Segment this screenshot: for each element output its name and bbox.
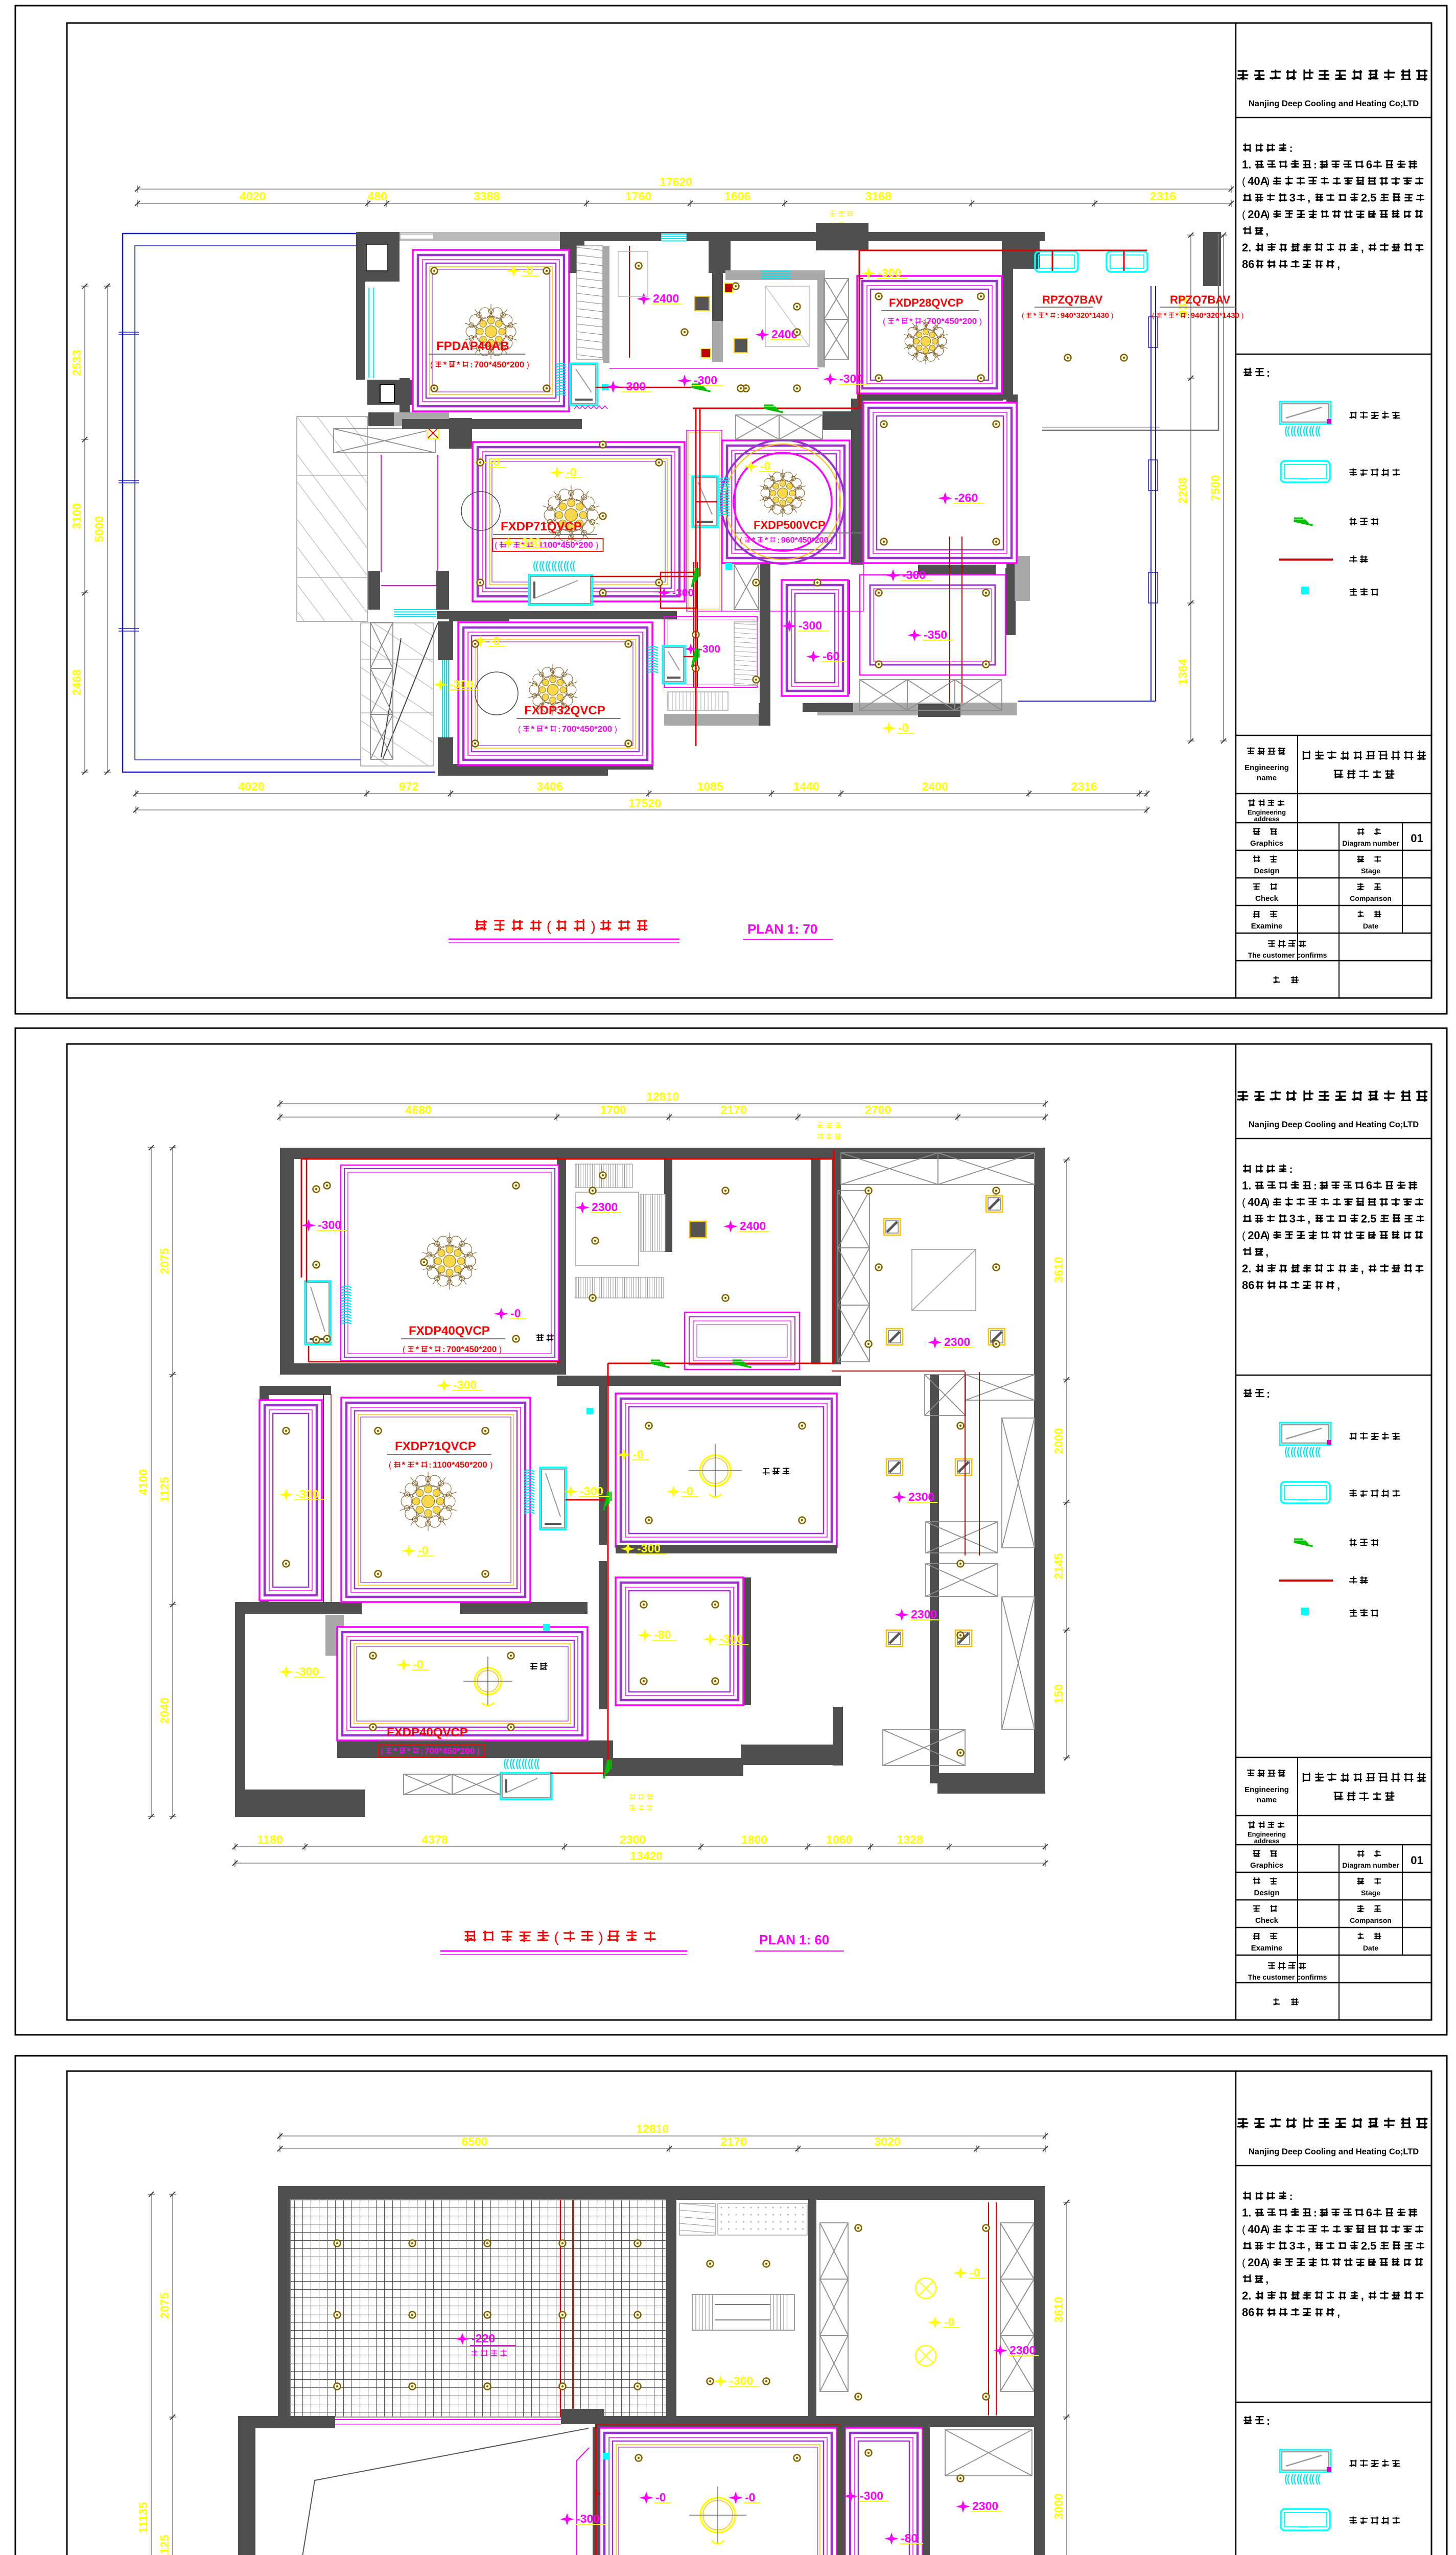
- svg-text:address: address: [1254, 1837, 1280, 1845]
- svg-text:Examine: Examine: [1251, 1944, 1283, 1953]
- svg-text:40A: 40A: [1248, 175, 1268, 188]
- svg-text:150: 150: [1052, 1684, 1065, 1704]
- svg-text:-300: -300: [730, 2374, 753, 2387]
- svg-text:,: ,: [1265, 1247, 1269, 1259]
- svg-text:-0: -0: [970, 2266, 980, 2279]
- svg-text:,: ,: [1337, 1281, 1340, 1292]
- svg-text:FXDP500VCP: FXDP500VCP: [754, 519, 826, 531]
- svg-text:11135: 11135: [136, 2502, 150, 2534]
- svg-text::: :: [1289, 1164, 1293, 1175]
- svg-text:12810: 12810: [636, 2122, 669, 2135]
- svg-text:(: (: [1242, 2224, 1246, 2236]
- svg-text:1440: 1440: [793, 780, 819, 793]
- svg-text:-300: -300: [580, 1484, 603, 1498]
- svg-text:2208: 2208: [1176, 477, 1189, 503]
- svg-text:-80: -80: [654, 1628, 671, 1641]
- svg-text:): ): [598, 1929, 603, 1945]
- svg-text:(: (: [381, 1747, 383, 1756]
- svg-text::: :: [429, 1461, 431, 1470]
- svg-text:2.5: 2.5: [1361, 2240, 1377, 2252]
- svg-text:*: *: [429, 1344, 433, 1354]
- svg-text:1760: 1760: [625, 190, 651, 203]
- svg-text::: :: [1187, 312, 1190, 319]
- svg-text:Date: Date: [1363, 1944, 1379, 1952]
- svg-text:(: (: [1242, 1197, 1246, 1209]
- svg-text:-300: -300: [622, 380, 646, 393]
- svg-text:(: (: [547, 918, 552, 934]
- svg-text:Diagram number: Diagram number: [1342, 1861, 1399, 1869]
- svg-text:2000: 2000: [1052, 1428, 1065, 1454]
- svg-text:-300: -300: [576, 2512, 600, 2525]
- svg-text::: :: [470, 361, 473, 369]
- svg-text:Nanjing Deep Cooling and Heati: Nanjing Deep Cooling and Heating Co;LTD: [1249, 99, 1419, 108]
- svg-text:Comparison: Comparison: [1350, 894, 1392, 902]
- svg-text:RPZQ7BAV: RPZQ7BAV: [1042, 293, 1102, 306]
- svg-text::: :: [1313, 2208, 1317, 2219]
- svg-text:40A: 40A: [1248, 2223, 1268, 2236]
- svg-text:20A: 20A: [1248, 208, 1268, 221]
- svg-text:-0: -0: [418, 1544, 428, 1557]
- svg-text:40A: 40A: [1248, 1196, 1268, 1209]
- svg-text:2533: 2533: [70, 350, 83, 376]
- svg-text:-300: -300: [799, 619, 822, 632]
- svg-text:86: 86: [1242, 258, 1254, 271]
- svg-text:Nanjing Deep Cooling and Heati: Nanjing Deep Cooling and Heating Co;LTD: [1249, 2147, 1419, 2156]
- svg-text:*: *: [457, 360, 460, 369]
- svg-text:-0: -0: [633, 1448, 643, 1461]
- svg-text:3610: 3610: [1052, 1257, 1065, 1283]
- svg-text:20A: 20A: [1248, 2256, 1268, 2269]
- svg-text:Examine: Examine: [1251, 922, 1283, 931]
- svg-text::: :: [1266, 366, 1270, 379]
- svg-text:,: ,: [1307, 2240, 1310, 2252]
- svg-text:*: *: [752, 536, 756, 545]
- svg-text:2316: 2316: [1071, 780, 1097, 793]
- svg-text:4378: 4378: [421, 1833, 448, 1846]
- svg-text:2400: 2400: [740, 1219, 766, 1233]
- svg-text:-300: -300: [878, 266, 901, 280]
- svg-text:3: 3: [1289, 192, 1296, 204]
- svg-text:FPDAP40AB: FPDAP40AB: [436, 339, 509, 353]
- svg-text:4680: 4680: [405, 1103, 431, 1117]
- svg-text:3388: 3388: [474, 190, 500, 203]
- svg-text:-300: -300: [450, 678, 473, 691]
- svg-text:(: (: [1242, 1230, 1246, 1242]
- svg-text:6: 6: [1366, 2206, 1372, 2219]
- svg-text:7500: 7500: [1209, 475, 1222, 501]
- svg-text:-300: -300: [672, 587, 694, 599]
- svg-text:-260: -260: [954, 491, 978, 504]
- svg-text:,: ,: [1361, 241, 1364, 254]
- svg-text::: :: [420, 1747, 423, 1756]
- svg-text:2075: 2075: [158, 1248, 171, 1274]
- svg-text:940*320*1430: 940*320*1430: [1061, 311, 1109, 320]
- svg-text:Nanjing Deep Cooling and Heati: Nanjing Deep Cooling and Heating Co;LTD: [1249, 1120, 1419, 1129]
- svg-text:480: 480: [367, 190, 387, 203]
- svg-text:-0: -0: [745, 2491, 755, 2504]
- svg-text:Graphics: Graphics: [1250, 839, 1283, 848]
- svg-text:2.: 2.: [1242, 241, 1251, 254]
- svg-text:Diagram number: Diagram number: [1342, 839, 1399, 847]
- svg-text:2075: 2075: [158, 2292, 171, 2318]
- svg-text:3020: 3020: [874, 2135, 900, 2148]
- svg-text:*: *: [765, 536, 768, 545]
- svg-text:2316: 2316: [1150, 190, 1176, 203]
- svg-text:,: ,: [1361, 2289, 1364, 2302]
- svg-text:The customer confirms: The customer confirms: [1248, 1973, 1327, 1981]
- svg-text:(: (: [495, 541, 497, 550]
- svg-text:700*450*200: 700*450*200: [562, 724, 612, 734]
- svg-text:(: (: [389, 1461, 391, 1470]
- svg-text:2468: 2468: [70, 669, 83, 695]
- svg-text:PLAN 1: 60: PLAN 1: 60: [759, 1932, 829, 1947]
- svg-text:2300: 2300: [944, 1335, 970, 1349]
- svg-text:The customer confirms: The customer confirms: [1248, 951, 1327, 959]
- svg-text:,: ,: [1265, 2274, 1269, 2286]
- svg-text:-300: -300: [719, 1632, 743, 1645]
- svg-text:): ): [591, 918, 596, 934]
- svg-text:2400: 2400: [922, 780, 948, 793]
- svg-text:1.: 1.: [1242, 1179, 1251, 1192]
- svg-text:(: (: [883, 317, 885, 326]
- svg-text:1700: 1700: [600, 1103, 626, 1117]
- svg-text:-300: -300: [295, 1665, 319, 1678]
- svg-text:2400: 2400: [653, 292, 679, 305]
- svg-text:940*320*1430: 940*320*1430: [1191, 311, 1239, 320]
- svg-text:4100: 4100: [136, 1469, 150, 1495]
- svg-text:): ): [1266, 1197, 1270, 1209]
- svg-text:700*450*200: 700*450*200: [927, 316, 977, 326]
- svg-text::: :: [1313, 160, 1317, 171]
- svg-text::: :: [1057, 312, 1060, 319]
- svg-text::: :: [1266, 1387, 1270, 1400]
- svg-text:*: *: [531, 724, 535, 734]
- svg-text:2170: 2170: [720, 2135, 746, 2148]
- svg-text:-0: -0: [523, 264, 533, 277]
- svg-text:(: (: [1242, 210, 1246, 221]
- svg-text:2040: 2040: [158, 1698, 171, 1724]
- svg-text:-300: -300: [839, 372, 863, 385]
- svg-text:PLAN 1: 70: PLAN 1: 70: [747, 921, 817, 937]
- svg-text:2.: 2.: [1242, 2289, 1251, 2302]
- svg-text:Graphics: Graphics: [1250, 1861, 1283, 1870]
- svg-text:FXDP32QVCP: FXDP32QVCP: [524, 704, 605, 717]
- svg-text:*: *: [1045, 311, 1048, 320]
- svg-text:6: 6: [1366, 158, 1372, 171]
- svg-text:*: *: [394, 1746, 397, 1756]
- svg-text:FXDP40QVCP: FXDP40QVCP: [387, 1726, 468, 1739]
- svg-text:*: *: [896, 316, 900, 326]
- svg-text:*: *: [545, 724, 548, 734]
- svg-text:Check: Check: [1255, 1916, 1279, 1925]
- svg-text:1364: 1364: [1176, 659, 1189, 685]
- svg-text:2300: 2300: [911, 1608, 937, 1621]
- svg-text:-0: -0: [683, 1484, 693, 1498]
- svg-text:1.: 1.: [1242, 158, 1251, 171]
- svg-text:-0: -0: [760, 459, 770, 473]
- svg-text:-0: -0: [413, 1658, 423, 1671]
- svg-text:1125: 1125: [158, 1477, 171, 1502]
- svg-text:address: address: [1254, 815, 1280, 823]
- svg-text:*: *: [1034, 311, 1037, 320]
- svg-text:FXDP28QVCP: FXDP28QVCP: [889, 296, 964, 309]
- svg-text:(: (: [1242, 176, 1246, 188]
- svg-text:Stage: Stage: [1361, 867, 1380, 875]
- svg-text:972: 972: [399, 780, 418, 793]
- svg-text:Check: Check: [1255, 894, 1279, 903]
- svg-text:,: ,: [1361, 1262, 1364, 1275]
- svg-text:,: ,: [1265, 226, 1269, 238]
- svg-text:2700: 2700: [865, 1103, 891, 1117]
- svg-text:*: *: [416, 1344, 419, 1354]
- svg-text:2170: 2170: [720, 1103, 746, 1117]
- svg-text:(: (: [554, 1929, 559, 1945]
- svg-text:(: (: [1022, 312, 1024, 319]
- svg-text:(: (: [403, 1345, 405, 1354]
- svg-text:2300: 2300: [1009, 2343, 1036, 2357]
- svg-text:*: *: [407, 1746, 411, 1756]
- svg-text:-300: -300: [860, 2489, 883, 2502]
- svg-text:Date: Date: [1363, 922, 1379, 930]
- svg-text:FXDP40QVCP: FXDP40QVCP: [409, 1324, 490, 1338]
- svg-text:): ): [1111, 312, 1114, 319]
- svg-text:01: 01: [1411, 1854, 1423, 1867]
- svg-text:): ): [1266, 1230, 1270, 1242]
- svg-text:3168: 3168: [865, 190, 891, 203]
- svg-text:name: name: [1257, 1796, 1277, 1804]
- svg-text:*: *: [1176, 311, 1179, 320]
- svg-text:(: (: [430, 361, 433, 369]
- svg-text:*: *: [1164, 311, 1167, 320]
- svg-text:6500: 6500: [461, 2135, 487, 2148]
- svg-text:(: (: [1152, 312, 1155, 319]
- svg-text:-0: -0: [944, 2315, 954, 2329]
- svg-text:FXDP71QVCP: FXDP71QVCP: [501, 520, 582, 533]
- svg-text:-0: -0: [510, 1307, 521, 1320]
- svg-text:(: (: [1242, 2258, 1246, 2269]
- svg-text:20A: 20A: [1248, 1229, 1268, 1242]
- svg-text:(: (: [518, 725, 521, 734]
- svg-text:3: 3: [1289, 2240, 1296, 2252]
- svg-text:700*450*200: 700*450*200: [474, 360, 524, 369]
- svg-text:-300: -300: [699, 643, 720, 655]
- svg-text:FXDP71QVCP: FXDP71QVCP: [395, 1439, 476, 1453]
- svg-text:5000: 5000: [92, 516, 106, 542]
- svg-text:Engineering: Engineering: [1244, 763, 1289, 772]
- svg-text:): ): [477, 1747, 480, 1756]
- svg-text::: :: [1289, 2191, 1293, 2202]
- svg-text:1125: 1125: [158, 2535, 171, 2555]
- svg-text:,: ,: [1307, 1213, 1310, 1225]
- svg-text:*: *: [909, 316, 913, 326]
- svg-text:12810: 12810: [646, 1090, 679, 1103]
- svg-text:-60: -60: [823, 649, 839, 663]
- svg-text:700*450*200: 700*450*200: [425, 1746, 475, 1756]
- svg-text:): ): [596, 541, 598, 550]
- svg-text:4020: 4020: [238, 780, 264, 793]
- svg-text:2145: 2145: [1052, 1553, 1065, 1579]
- svg-text:1085: 1085: [697, 780, 723, 793]
- svg-text:700*450*200: 700*450*200: [447, 1344, 497, 1354]
- svg-text:-220: -220: [472, 2332, 495, 2345]
- svg-text:3: 3: [1289, 1213, 1296, 1225]
- svg-text:-300: -300: [902, 568, 926, 582]
- svg-text::: :: [442, 1345, 445, 1354]
- svg-text:): ): [499, 1345, 502, 1354]
- svg-text:-350: -350: [924, 628, 947, 641]
- svg-text:-300: -300: [694, 374, 717, 387]
- svg-text:Design: Design: [1254, 1889, 1279, 1897]
- svg-text:): ): [1266, 210, 1270, 221]
- svg-text::: :: [1289, 143, 1293, 154]
- svg-text:RPZQ7BAV: RPZQ7BAV: [1170, 293, 1230, 306]
- svg-text:(: (: [740, 537, 742, 545]
- svg-text:*: *: [443, 360, 447, 369]
- svg-text:): ): [831, 537, 833, 545]
- svg-text:,: ,: [1337, 260, 1340, 271]
- svg-text::: :: [1313, 1181, 1317, 1192]
- svg-text:1.: 1.: [1242, 2206, 1251, 2219]
- svg-text:-300: -300: [295, 1488, 319, 1501]
- svg-text:Comparison: Comparison: [1350, 1916, 1392, 1924]
- svg-text:-0: -0: [655, 2491, 666, 2504]
- svg-text:3406: 3406: [536, 780, 562, 793]
- svg-text:): ): [615, 725, 617, 734]
- svg-text:1328: 1328: [897, 1833, 923, 1846]
- svg-text::: :: [1266, 2414, 1270, 2427]
- svg-text:*: *: [415, 1460, 419, 1470]
- svg-text:4020: 4020: [240, 190, 266, 203]
- svg-text:-0: -0: [898, 721, 908, 734]
- svg-text:1800: 1800: [741, 1833, 767, 1846]
- svg-text:Stage: Stage: [1361, 1889, 1380, 1897]
- svg-text:): ): [490, 1461, 492, 1470]
- svg-text:-300: -300: [518, 536, 541, 549]
- svg-text:-80: -80: [901, 2531, 918, 2545]
- svg-text:2.5: 2.5: [1361, 192, 1377, 204]
- svg-text:-0: -0: [566, 466, 576, 479]
- svg-text:-300: -300: [637, 1542, 661, 1555]
- svg-text:Design: Design: [1254, 867, 1279, 875]
- svg-text:01: 01: [1411, 832, 1423, 845]
- svg-text:3100: 3100: [70, 503, 83, 529]
- svg-text:): ): [527, 361, 529, 369]
- svg-text:1100*450*200: 1100*450*200: [433, 1460, 487, 1470]
- svg-text:): ): [1266, 2224, 1270, 2236]
- svg-text:-300: -300: [453, 1378, 477, 1391]
- svg-text:86: 86: [1242, 1279, 1254, 1292]
- svg-text:1060: 1060: [826, 1833, 852, 1846]
- svg-text:2300: 2300: [620, 1833, 646, 1846]
- svg-text:1180: 1180: [257, 1833, 283, 1846]
- svg-text:3610: 3610: [1052, 2296, 1065, 2322]
- svg-text:17520: 17520: [628, 797, 661, 810]
- svg-text:,: ,: [1307, 192, 1310, 204]
- svg-text::: :: [778, 537, 780, 545]
- svg-text:name: name: [1257, 774, 1277, 782]
- svg-text:): ): [1266, 2258, 1270, 2269]
- svg-text:960*450*200: 960*450*200: [781, 536, 829, 545]
- svg-text::: :: [558, 725, 560, 734]
- svg-text:Engineering: Engineering: [1244, 1785, 1289, 1794]
- svg-text:2.5: 2.5: [1361, 1213, 1377, 1225]
- svg-text:13420: 13420: [630, 1849, 663, 1863]
- svg-text:-0: -0: [489, 455, 500, 469]
- svg-text:*: *: [402, 1460, 406, 1470]
- svg-text:17620: 17620: [660, 175, 692, 189]
- svg-text:6: 6: [1366, 1179, 1372, 1192]
- svg-text:-300: -300: [318, 1218, 341, 1232]
- svg-text:,: ,: [1337, 2308, 1340, 2319]
- svg-text:): ): [979, 317, 982, 326]
- svg-text:-0: -0: [489, 634, 500, 647]
- svg-text::: :: [923, 317, 925, 326]
- svg-text:): ): [1266, 176, 1270, 188]
- svg-text:1100*450*200: 1100*450*200: [538, 540, 593, 550]
- svg-text:3000: 3000: [1052, 2493, 1065, 2519]
- svg-text:2300: 2300: [972, 2499, 998, 2513]
- svg-text:): ): [1241, 312, 1244, 319]
- svg-text:2300: 2300: [592, 1200, 618, 1214]
- svg-text:2300: 2300: [908, 1490, 934, 1503]
- svg-text:2.: 2.: [1242, 1262, 1251, 1275]
- svg-text:86: 86: [1242, 2306, 1254, 2319]
- svg-text:1606: 1606: [724, 190, 750, 203]
